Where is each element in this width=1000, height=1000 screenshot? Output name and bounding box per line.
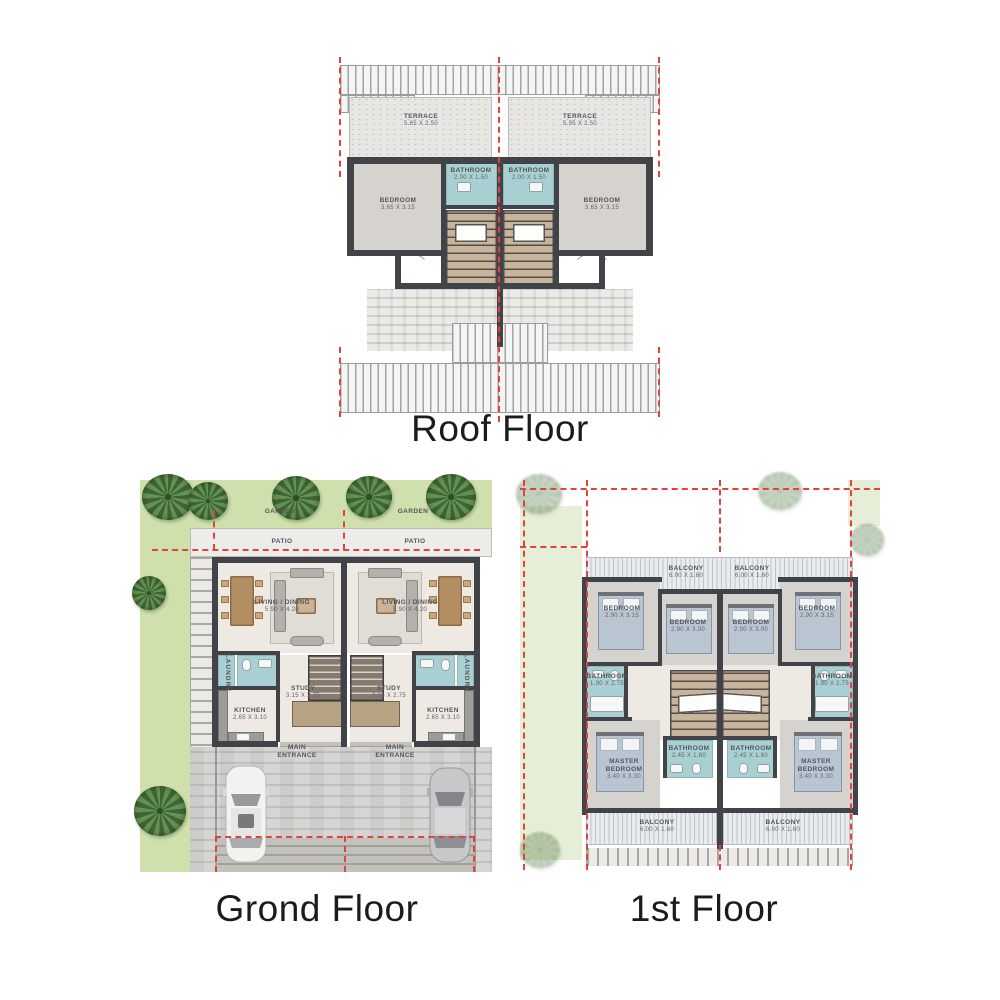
wall <box>503 205 559 209</box>
chair <box>255 612 263 619</box>
setback-line <box>520 488 880 490</box>
chair <box>429 596 437 603</box>
roof-bedroom-right-floor <box>557 164 647 252</box>
lawn-corner-top-right <box>848 480 880 526</box>
bed <box>596 732 644 792</box>
ground-stairs-left <box>308 655 342 701</box>
pillow <box>600 738 618 751</box>
headboard <box>795 592 841 596</box>
bed <box>666 604 712 654</box>
wall <box>276 655 280 742</box>
ground-floor-title: Grond Floor <box>216 888 419 930</box>
wall <box>441 205 497 209</box>
setback-line <box>213 510 215 550</box>
first-floor-title: 1st Floor <box>630 888 778 930</box>
chair <box>221 612 229 619</box>
headboard <box>728 604 774 608</box>
wall <box>624 666 628 718</box>
palm-tree-icon <box>426 474 476 520</box>
sofa <box>290 636 324 646</box>
toilet-icon <box>610 670 619 681</box>
stair-landing-right <box>513 224 545 242</box>
party-line <box>719 845 721 870</box>
wall <box>811 666 815 718</box>
boundary-line <box>658 347 660 417</box>
sink-icon <box>420 659 434 668</box>
chair <box>463 612 471 619</box>
wall <box>778 662 853 666</box>
sofa <box>290 568 324 578</box>
bed <box>794 732 842 792</box>
wall <box>474 557 480 747</box>
pillow <box>753 610 770 621</box>
palm-tree-icon <box>520 832 560 868</box>
headboard <box>666 604 712 608</box>
roof-stairs-right <box>503 210 554 286</box>
wall <box>218 686 280 690</box>
palm-tree-icon <box>758 472 802 510</box>
palm-tree-icon <box>272 476 320 520</box>
wall <box>554 209 559 289</box>
chair <box>221 596 229 603</box>
roof-ridge-top <box>340 65 660 95</box>
wall <box>395 256 401 289</box>
pillow <box>799 598 816 611</box>
sofa <box>274 580 286 632</box>
sink-icon <box>592 670 604 678</box>
roof-floor-title: Roof Floor <box>411 408 589 450</box>
wall <box>778 577 857 582</box>
boundary-line <box>473 836 475 872</box>
headboard <box>598 592 644 596</box>
wall <box>663 736 775 740</box>
roof-bottom-band <box>340 363 660 413</box>
toilet-icon <box>242 659 251 671</box>
ground-floor-plan: GARDEN GARDEN PATIO PATIO LIVING / DININ… <box>140 480 492 880</box>
wall <box>412 651 474 655</box>
bed <box>728 604 774 654</box>
chair <box>429 580 437 587</box>
party-line <box>498 57 500 422</box>
wall <box>412 655 416 742</box>
palm-tree-icon <box>850 524 884 556</box>
pillow <box>732 610 749 621</box>
setback-line <box>343 510 345 550</box>
balcony-bottom-right <box>723 812 853 845</box>
dining-table <box>438 576 462 626</box>
boundary-line <box>339 57 341 177</box>
stair-landing <box>678 693 718 714</box>
wall <box>773 736 777 778</box>
car-top-view-white <box>222 764 270 864</box>
toilet-icon <box>739 763 748 774</box>
bed <box>598 592 644 650</box>
coffee-table <box>296 598 316 614</box>
wall <box>441 209 446 289</box>
roof-floor-plan: TERRACE 5.65 X 2.50 TERRACE 5.95 X 2.50 … <box>337 57 663 422</box>
pillow <box>691 610 708 621</box>
wall <box>412 686 474 690</box>
toilet-icon <box>820 670 829 681</box>
wall <box>646 157 653 256</box>
boundary-line <box>658 57 660 177</box>
stair-landing-left <box>455 224 487 242</box>
sink-icon <box>670 764 683 773</box>
palm-tree-icon <box>132 576 166 610</box>
chair <box>463 596 471 603</box>
ground-stairs-right <box>350 655 384 701</box>
terrace-left-floor <box>349 97 492 161</box>
bathtub-icon <box>815 696 849 712</box>
pillow <box>622 738 640 751</box>
sink-icon <box>529 182 543 192</box>
wall <box>663 736 667 778</box>
patio-band <box>190 528 492 557</box>
roof-stairs-left <box>446 210 497 286</box>
toilet-icon <box>692 763 701 774</box>
boundary-line <box>850 480 852 870</box>
kitchen-counter <box>464 690 474 742</box>
pillow <box>820 738 838 751</box>
headboard <box>596 732 644 736</box>
wall <box>341 557 347 747</box>
first-floor-plan: BALCONY 6.00 X 1.60 BALCONY 6.00 X 1.60 … <box>520 480 880 880</box>
pillow <box>623 598 640 611</box>
stair-landing <box>722 693 762 714</box>
wall <box>599 256 605 289</box>
chair <box>255 596 263 603</box>
balcony-bottom-left <box>586 812 717 845</box>
wall <box>778 589 782 665</box>
bathtub-icon <box>590 696 624 712</box>
wall <box>853 577 858 815</box>
chair <box>221 580 229 587</box>
sink-icon <box>757 764 770 773</box>
wall <box>218 651 280 655</box>
chair <box>429 612 437 619</box>
pillow <box>798 738 816 751</box>
sink-icon <box>457 182 471 192</box>
boundary-line <box>344 836 346 872</box>
bed <box>795 592 841 650</box>
car-top-view-silver <box>426 766 474 864</box>
kitchen-counter <box>218 690 228 742</box>
wall <box>347 157 354 256</box>
party-line <box>719 480 721 552</box>
coffee-table <box>376 598 396 614</box>
boundary-line <box>215 836 217 872</box>
lawn-left <box>520 506 582 860</box>
sofa <box>368 568 402 578</box>
headboard <box>794 732 842 736</box>
pillow <box>670 610 687 621</box>
pillow <box>602 598 619 611</box>
setback-line <box>586 480 588 870</box>
dining-table <box>230 576 254 626</box>
sofa <box>368 636 402 646</box>
toilet-icon <box>441 659 450 671</box>
setback-line <box>152 549 480 551</box>
chair <box>255 580 263 587</box>
pillow <box>820 598 837 611</box>
palm-tree-icon <box>346 476 392 518</box>
wall <box>658 589 662 665</box>
sofa <box>406 580 418 632</box>
wall <box>582 577 662 582</box>
boundary-line <box>523 480 525 870</box>
sink-icon <box>258 659 272 668</box>
stair-turn-left <box>292 701 342 727</box>
stove-icon <box>236 733 250 741</box>
wall <box>586 808 853 813</box>
floorplan-sheet: TERRACE 5.65 X 2.50 TERRACE 5.95 X 2.50 … <box>0 0 1000 1000</box>
setback-line <box>520 546 587 548</box>
boundary-line <box>339 347 341 417</box>
palm-tree-icon <box>134 786 186 836</box>
roof-bathroom-left-floor <box>446 163 497 207</box>
stove-icon <box>442 733 456 741</box>
roof-bedroom-left-floor <box>353 164 443 252</box>
palm-tree-icon <box>188 482 228 520</box>
sink-icon <box>835 670 847 678</box>
stair-turn-right <box>350 701 400 727</box>
chair <box>463 580 471 587</box>
terrace-right-floor <box>508 97 651 161</box>
palm-tree-icon <box>142 474 194 520</box>
